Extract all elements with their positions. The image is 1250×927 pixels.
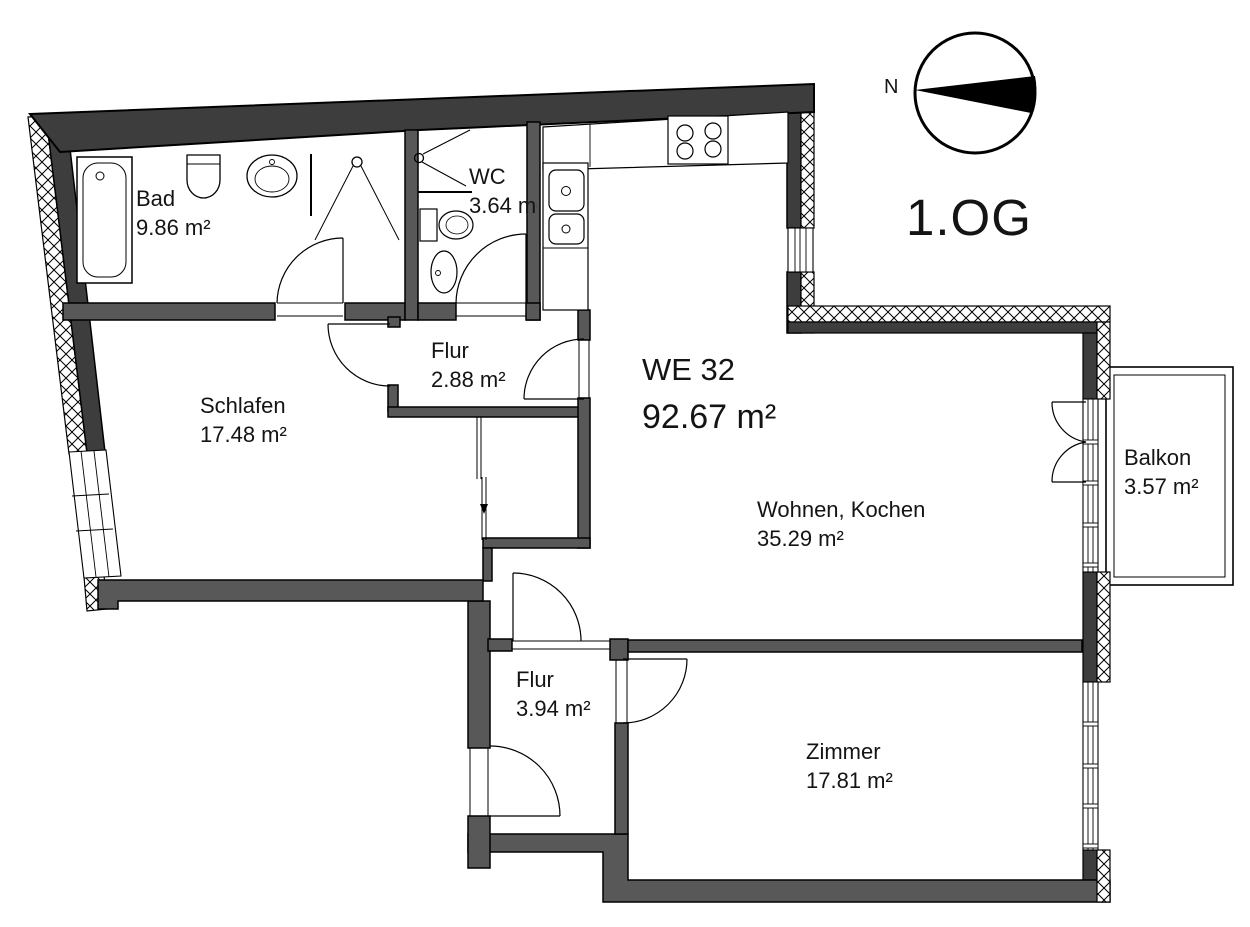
room-label-bad: Bad 9.86 m² [136,185,211,242]
floor-plan-drawing [0,0,1250,927]
unit-label: WE 32 92.67 m² [642,352,776,437]
room-area: 2.88 m² [431,366,506,395]
room-label-wc: WC 3.64 m² [469,163,537,220]
room-label-wohnen: Wohnen, Kochen 35.29 m² [757,496,925,553]
room-name: Flur [431,337,506,366]
entrance-door [490,746,560,816]
wc-door [456,234,526,303]
bad-shower-icon [311,154,399,240]
bottom-wall [468,834,1110,902]
room-area: 17.81 m² [806,767,893,796]
zimmer-window [1083,682,1098,850]
floor-label: 1.OG [906,188,1032,247]
room-area: 35.29 m² [757,525,925,554]
unit-total-area: 92.67 m² [642,398,776,437]
room-area: 9.86 m² [136,214,211,243]
room-label-flur-lower: Flur 3.94 m² [516,666,591,723]
room-area: 17.48 m² [200,421,287,450]
stove-icon [668,116,728,164]
room-label-balkon: Balkon 3.57 m² [1124,444,1199,501]
room-name: Zimmer [806,738,893,767]
room-area: 3.57 m² [1124,473,1199,502]
unit-name: WE 32 [642,352,776,388]
flur-wohnen-door [524,339,584,399]
wohnen-flur-lower-door [513,573,581,641]
balcony-door [1052,402,1086,482]
room-name: Flur [516,666,591,695]
room-label-schlafen: Schlafen 17.48 m² [200,392,287,449]
toilet-icon [420,209,473,241]
room-name: Bad [136,185,211,214]
kitchen-window [788,228,813,272]
kitchen-sink-icon [543,163,588,310]
washbasin-oval-icon [247,155,297,197]
fixtures [77,112,788,540]
room-label-zimmer: Zimmer 17.81 m² [806,738,893,795]
room-area: 3.64 m² [469,192,537,221]
sliding-door-icon [477,417,488,540]
schlafen-door [328,324,390,386]
room-area: 3.94 m² [516,695,591,724]
schlafen-window [69,450,121,578]
compass-icon [915,33,1036,153]
wc-shower-icon [415,130,473,192]
room-name: Schlafen [200,392,287,421]
zimmer-door [623,659,687,723]
room-name: WC [469,163,537,192]
room-name: Balkon [1124,444,1199,473]
balcony-window [1083,399,1098,572]
wc-sink-icon [431,251,457,293]
room-name: Wohnen, Kochen [757,496,925,525]
room-label-flur-upper: Flur 2.88 m² [431,337,506,394]
bathtub-icon [77,157,132,283]
bad-door [277,238,343,303]
compass-north-label: N [884,76,898,99]
floor-plan: N 1.OG WE 32 92.67 m² Bad 9.86 m² WC 3.6… [0,0,1250,927]
